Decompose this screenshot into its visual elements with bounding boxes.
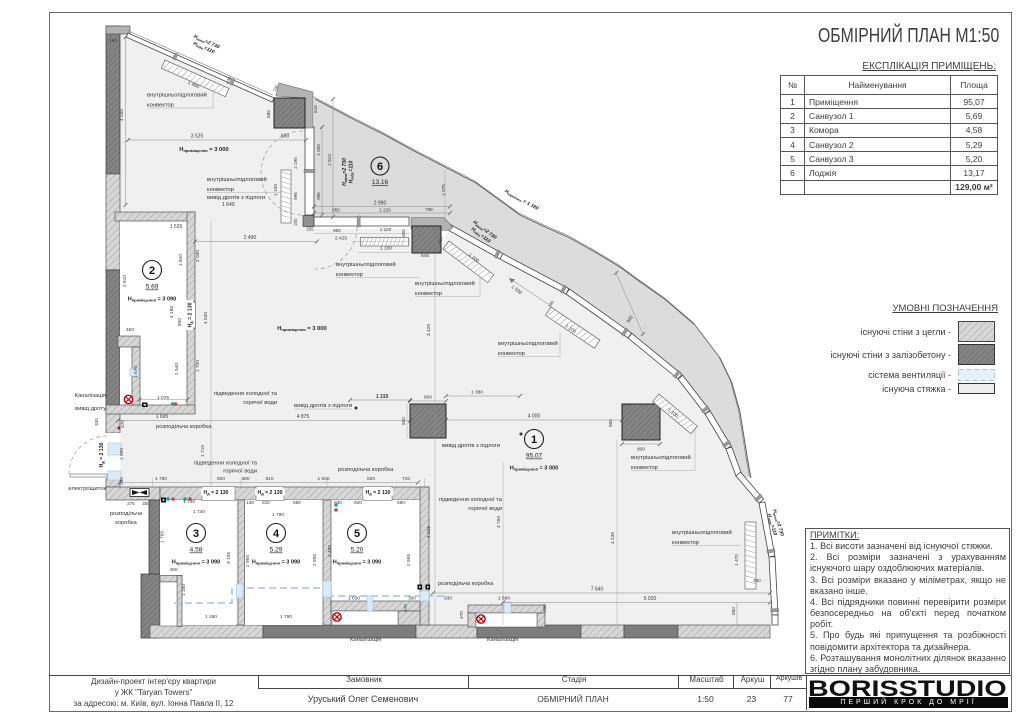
svg-text:950: 950: [333, 228, 341, 233]
svg-text:4 235: 4 235: [610, 532, 616, 544]
svg-text:горячої води: горячої води: [468, 506, 502, 512]
svg-text:1 220: 1 220: [379, 208, 391, 213]
svg-text:815: 815: [313, 105, 318, 113]
svg-text:розподільча коробка: розподільча коробка: [438, 581, 494, 587]
svg-text:конвектор: конвектор: [498, 351, 525, 357]
svg-text:810: 810: [265, 476, 273, 482]
svg-text:470: 470: [120, 420, 125, 428]
svg-text:Hприміщення = 3 090: Hприміщення = 3 090: [333, 560, 382, 566]
svg-text:2 610: 2 610: [122, 275, 128, 287]
svg-text:підведення холодної та: підведення холодної та: [214, 391, 278, 397]
svg-text:4 875: 4 875: [297, 414, 310, 420]
svg-text:3: 3: [193, 528, 199, 540]
svg-text:950: 950: [332, 208, 340, 213]
svg-text:1 470: 1 470: [734, 554, 739, 566]
svg-text:1 215: 1 215: [376, 394, 389, 400]
svg-text:995: 995: [316, 192, 321, 200]
svg-text:560: 560: [397, 500, 405, 505]
svg-text:внутрішньопідлоговий: внутрішньопідлоговий: [336, 261, 396, 268]
svg-text:4 215: 4 215: [426, 526, 432, 538]
svg-text:Hприміщення = 3 000: Hприміщення = 3 000: [277, 326, 326, 332]
svg-text:1 640: 1 640: [222, 202, 235, 208]
svg-text:4.58: 4.58: [190, 547, 203, 554]
svg-text:розподільча: розподільча: [110, 511, 143, 517]
svg-text:внутрішньопідлоговий: внутрішньопідлоговий: [147, 92, 207, 99]
svg-text:1 780: 1 780: [155, 476, 167, 482]
svg-text:2 485: 2 485: [327, 545, 333, 557]
svg-text:4 180: 4 180: [169, 306, 175, 318]
svg-text:930: 930: [444, 596, 452, 602]
svg-text:1 075: 1 075: [441, 184, 446, 196]
svg-text:2 955: 2 955: [312, 554, 318, 566]
svg-text:660: 660: [281, 134, 290, 140]
svg-text:1 740: 1 740: [183, 499, 195, 505]
svg-text:Hприміщення = 3 090: Hприміщення = 3 090: [172, 560, 221, 566]
svg-text:коробка: коробка: [115, 520, 137, 526]
svg-text:810: 810: [262, 500, 270, 505]
svg-text:Каналізація: Каналізація: [75, 393, 106, 399]
svg-text:1 695: 1 695: [156, 414, 169, 420]
svg-text:Каналізація: Каналізація: [487, 637, 518, 643]
svg-text:130: 130: [246, 500, 254, 505]
svg-text:Hприміщення = 3 000: Hприміщення = 3 000: [510, 466, 559, 472]
svg-text:820: 820: [367, 476, 375, 482]
svg-text:конвектор: конвектор: [631, 465, 658, 471]
svg-text:внутрішньопідлоговий: внутрішньопідлоговий: [498, 340, 558, 347]
svg-text:5.69: 5.69: [146, 284, 159, 291]
svg-text:1 100: 1 100: [380, 246, 392, 252]
svg-text:255: 255: [306, 227, 314, 232]
svg-text:820: 820: [354, 500, 362, 505]
svg-text:4 040: 4 040: [119, 109, 125, 121]
svg-text:внутрішньопідлоговий: внутрішньопідлоговий: [672, 529, 732, 536]
svg-text:1 535: 1 535: [170, 224, 183, 230]
svg-text:вивід дротів з підлоги: вивід дротів з підлоги: [207, 195, 265, 201]
svg-text:підведення холодної та: підведення холодної та: [194, 461, 258, 467]
svg-text:470: 470: [403, 604, 408, 612]
svg-text:Hприміщення = 3 090: Hприміщення = 3 090: [128, 297, 177, 303]
svg-text:внутрішньопідлоговий: внутрішньопідлоговий: [207, 176, 267, 183]
svg-text:1 380: 1 380: [471, 390, 483, 396]
svg-text:1 690: 1 690: [498, 596, 510, 602]
svg-text:460: 460: [753, 578, 761, 583]
svg-text:1 840: 1 840: [178, 254, 184, 266]
svg-text:800: 800: [424, 395, 432, 401]
svg-text:460: 460: [126, 327, 134, 333]
svg-text:13.16: 13.16: [372, 179, 389, 186]
svg-text:2 990: 2 990: [374, 201, 387, 207]
svg-text:630: 630: [334, 500, 342, 505]
svg-text:2 030: 2 030: [195, 250, 201, 262]
svg-text:240: 240: [119, 477, 124, 485]
svg-text:800: 800: [177, 318, 183, 326]
svg-text:820: 820: [217, 476, 225, 482]
svg-text:480: 480: [169, 567, 177, 573]
svg-text:850: 850: [731, 607, 736, 615]
svg-text:2 490: 2 490: [244, 235, 257, 241]
svg-text:4: 4: [273, 528, 280, 540]
svg-text:1 700: 1 700: [195, 360, 201, 372]
svg-text:1 790: 1 790: [280, 614, 292, 620]
svg-text:1 640: 1 640: [317, 476, 329, 482]
svg-text:конвектор: конвектор: [147, 103, 174, 109]
svg-text:490: 490: [542, 604, 547, 612]
svg-text:вивід дротів з підлоги: вивід дротів з підлоги: [442, 443, 500, 449]
svg-text:вивід дроту: вивід дроту: [75, 406, 106, 412]
svg-text:1 570: 1 570: [133, 366, 139, 378]
svg-text:530: 530: [437, 236, 443, 245]
svg-text:5.29: 5.29: [270, 547, 283, 554]
svg-text:150: 150: [109, 38, 117, 43]
svg-text:2 425: 2 425: [335, 236, 347, 242]
svg-text:1 220: 1 220: [380, 227, 392, 232]
svg-text:1 630: 1 630: [348, 596, 360, 602]
svg-text:1 540: 1 540: [174, 363, 180, 375]
svg-text:конвектор: конвектор: [672, 540, 699, 546]
svg-text:4 000: 4 000: [528, 414, 541, 420]
svg-text:2 955: 2 955: [245, 555, 251, 567]
svg-text:95.07: 95.07: [526, 453, 543, 460]
svg-text:3 105: 3 105: [226, 552, 232, 564]
svg-text:1: 1: [531, 434, 537, 446]
svg-text:1 740: 1 740: [193, 509, 205, 515]
svg-text:5 020: 5 020: [644, 596, 657, 602]
svg-text:Hприміщення = 3 000: Hприміщення = 3 000: [179, 147, 228, 153]
svg-text:Hприміщення = 3 090: Hприміщення = 3 090: [252, 560, 301, 566]
svg-text:Каналізація: Каналізація: [350, 637, 381, 643]
svg-text:3 525: 3 525: [191, 134, 204, 140]
svg-text:850: 850: [293, 500, 301, 505]
svg-text:конвектор: конвектор: [336, 272, 363, 278]
svg-text:1 000: 1 000: [316, 144, 321, 156]
svg-text:3 760: 3 760: [496, 516, 502, 528]
svg-text:вивід дротів з підлоги: вивід дротів з підлоги: [294, 403, 352, 409]
svg-text:1 795: 1 795: [160, 531, 166, 543]
svg-text:3 425: 3 425: [426, 324, 432, 336]
svg-text:електрощиток: електрощиток: [68, 486, 106, 492]
svg-text:645: 645: [421, 253, 429, 259]
svg-text:275: 275: [127, 501, 135, 506]
svg-text:800: 800: [401, 417, 406, 425]
svg-text:6: 6: [377, 161, 383, 173]
svg-text:685: 685: [266, 110, 271, 118]
svg-text:5: 5: [354, 528, 360, 540]
svg-text:2 955: 2 955: [406, 554, 412, 566]
svg-text:330: 330: [94, 418, 99, 426]
svg-text:внутрішньопідлоговий: внутрішньопідлоговий: [631, 454, 691, 461]
svg-text:5.20: 5.20: [351, 547, 364, 554]
svg-text:1 000: 1 000: [119, 448, 125, 460]
svg-text:380: 380: [241, 476, 249, 482]
svg-text:2 195: 2 195: [293, 157, 298, 169]
svg-text:внутрішньопідлоговий: внутрішньопідлоговий: [415, 280, 475, 287]
svg-text:4 530: 4 530: [203, 312, 209, 324]
svg-text:горячої води: горячої води: [243, 400, 277, 406]
svg-text:1 100: 1 100: [273, 184, 279, 196]
svg-text:конвектор: конвектор: [415, 291, 442, 297]
svg-text:995: 995: [293, 192, 298, 200]
svg-text:470: 470: [459, 611, 464, 619]
svg-text:710: 710: [402, 476, 410, 482]
svg-text:390: 390: [408, 596, 416, 601]
svg-text:розподільча коробка: розподільча коробка: [338, 467, 394, 473]
svg-text:Hпідв.=110: Hпідв.=110: [349, 160, 355, 183]
svg-text:600: 600: [401, 229, 406, 237]
svg-text:1 710: 1 710: [200, 445, 206, 457]
svg-text:200: 200: [293, 218, 298, 226]
svg-text:1 075: 1 075: [157, 395, 169, 401]
svg-text:2 810: 2 810: [327, 154, 332, 166]
svg-text:7 640: 7 640: [591, 587, 604, 593]
svg-text:2: 2: [149, 265, 155, 277]
svg-text:конвектор: конвектор: [207, 187, 234, 193]
svg-text:800: 800: [637, 447, 645, 453]
svg-text:1 160: 1 160: [181, 584, 187, 596]
svg-text:1 260: 1 260: [205, 614, 217, 620]
svg-text:350: 350: [142, 501, 150, 506]
svg-text:800: 800: [608, 419, 613, 427]
svg-text:горячої води: горячої води: [223, 469, 257, 475]
svg-text:розподільча коробка: розподільча коробка: [156, 424, 212, 430]
svg-text:підведення холодної та: підведення холодної та: [439, 497, 503, 503]
svg-text:1 790: 1 790: [272, 512, 284, 518]
svg-text:765: 765: [425, 207, 433, 212]
